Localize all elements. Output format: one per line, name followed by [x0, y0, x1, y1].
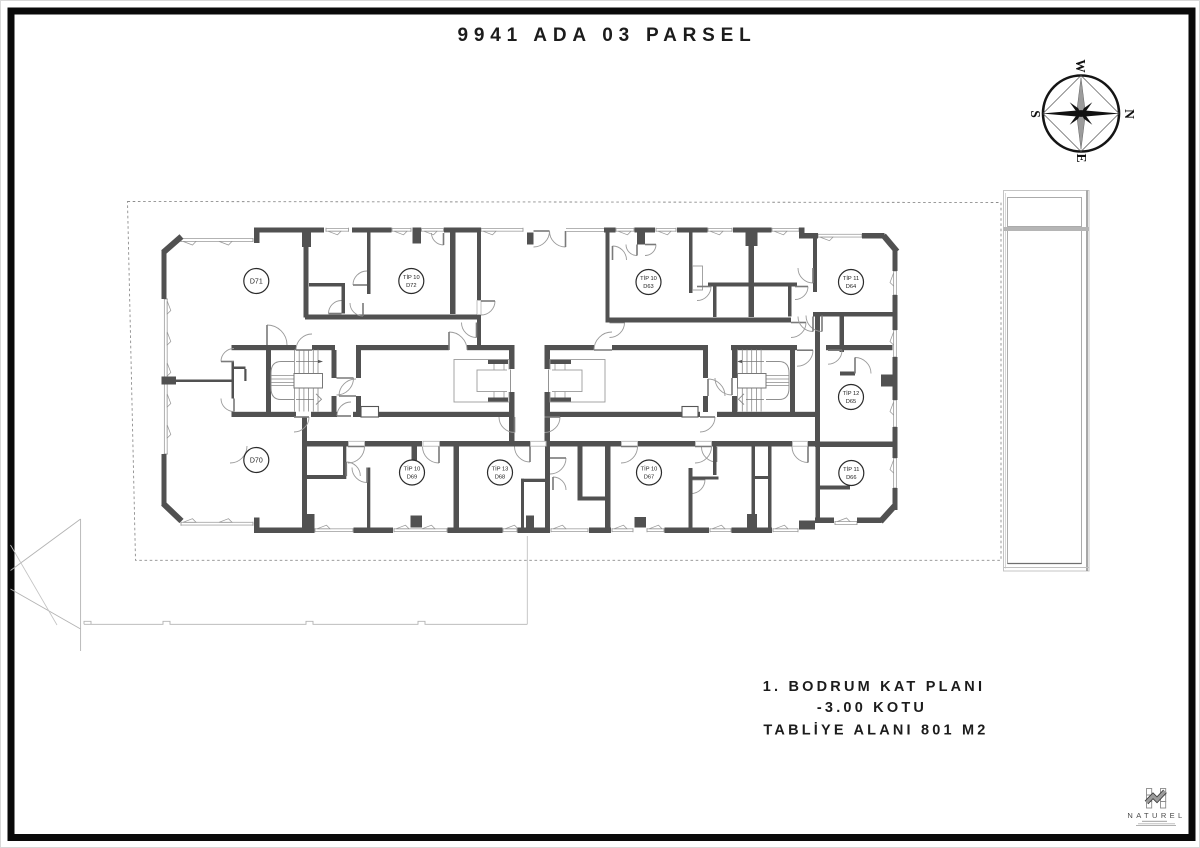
svg-text:9941 ADA 03 PARSEL: 9941 ADA 03 PARSEL	[457, 25, 756, 46]
svg-text:TİP 10: TİP 10	[640, 275, 657, 282]
svg-text:TİP 10: TİP 10	[403, 274, 420, 281]
svg-text:D66: D66	[846, 475, 856, 481]
svg-text:TİP 11: TİP 11	[843, 466, 859, 473]
svg-text:NATUREL: NATUREL	[1127, 811, 1185, 820]
svg-text:E: E	[1074, 153, 1089, 162]
svg-text:TİP 11: TİP 11	[843, 275, 859, 282]
svg-text:TİP 10: TİP 10	[641, 466, 658, 473]
svg-text:D64: D64	[846, 284, 856, 290]
svg-text:TİP 13: TİP 13	[492, 466, 509, 473]
svg-text:TİP 12: TİP 12	[843, 390, 860, 397]
svg-text:D69: D69	[407, 475, 417, 481]
svg-text:S: S	[1028, 110, 1043, 118]
svg-text:TİP 10: TİP 10	[404, 466, 421, 473]
svg-text:1. BODRUM KAT PLANI: 1. BODRUM KAT PLANI	[763, 679, 985, 695]
svg-text:N: N	[1122, 109, 1137, 119]
svg-text:D71: D71	[250, 279, 263, 286]
svg-text:D72: D72	[406, 283, 416, 289]
svg-text:W: W	[1073, 59, 1088, 73]
svg-text:D67: D67	[644, 475, 654, 481]
svg-text:-3.00 KOTU: -3.00 KOTU	[817, 700, 927, 716]
svg-text:D68: D68	[495, 475, 505, 481]
svg-text:D70: D70	[250, 458, 263, 465]
svg-text:TABLİYE ALANI 801 M2: TABLİYE ALANI 801 M2	[763, 722, 988, 739]
svg-text:D65: D65	[846, 399, 856, 405]
svg-text:D63: D63	[643, 284, 653, 290]
